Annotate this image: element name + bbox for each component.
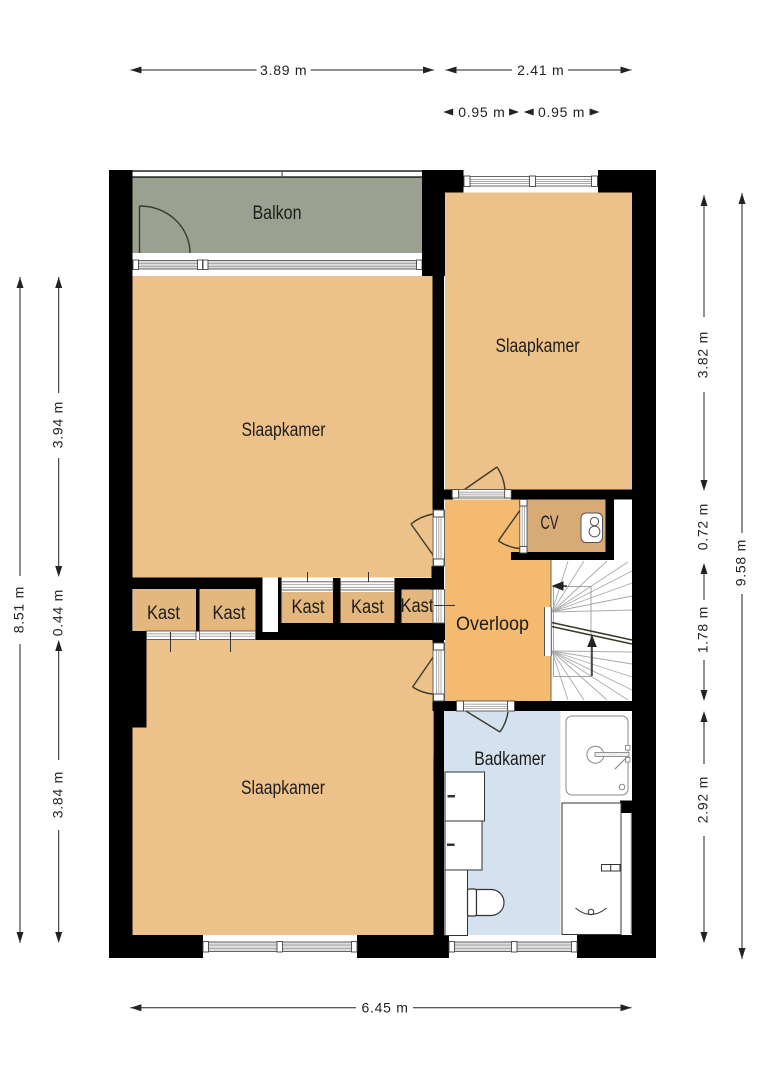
svg-text:3.89 m: 3.89 m [260, 62, 307, 78]
svg-text:3.82 m: 3.82 m [695, 332, 711, 379]
svg-text:0.95 m: 0.95 m [538, 104, 585, 120]
svg-text:Kast: Kast [213, 603, 247, 624]
svg-text:6.45 m: 6.45 m [361, 1000, 408, 1016]
svg-text:2.92 m: 2.92 m [695, 777, 711, 824]
svg-text:Kast: Kast [351, 597, 385, 618]
svg-text:Slaapkamer: Slaapkamer [241, 778, 326, 799]
svg-text:Balkon: Balkon [253, 203, 302, 224]
svg-text:Slaapkamer: Slaapkamer [496, 336, 581, 357]
svg-text:Overloop: Overloop [456, 614, 529, 635]
svg-text:Kast: Kast [147, 603, 181, 624]
svg-text:Kast: Kast [292, 597, 326, 618]
svg-text:Slaapkamer: Slaapkamer [242, 420, 327, 441]
svg-text:9.58 m: 9.58 m [733, 540, 749, 587]
svg-text:Kast: Kast [401, 596, 435, 617]
svg-text:3.84 m: 3.84 m [49, 772, 65, 819]
svg-text:0.72 m: 0.72 m [695, 504, 711, 551]
svg-text:8.51 m: 8.51 m [11, 587, 27, 634]
svg-text:0.44 m: 0.44 m [49, 590, 65, 637]
svg-text:3.94 m: 3.94 m [49, 402, 65, 449]
svg-text:1.78 m: 1.78 m [695, 607, 711, 654]
svg-text:2.41 m: 2.41 m [517, 62, 564, 78]
svg-text:CV: CV [541, 513, 559, 534]
svg-text:0.95 m: 0.95 m [458, 104, 505, 120]
svg-text:Badkamer: Badkamer [474, 749, 546, 770]
